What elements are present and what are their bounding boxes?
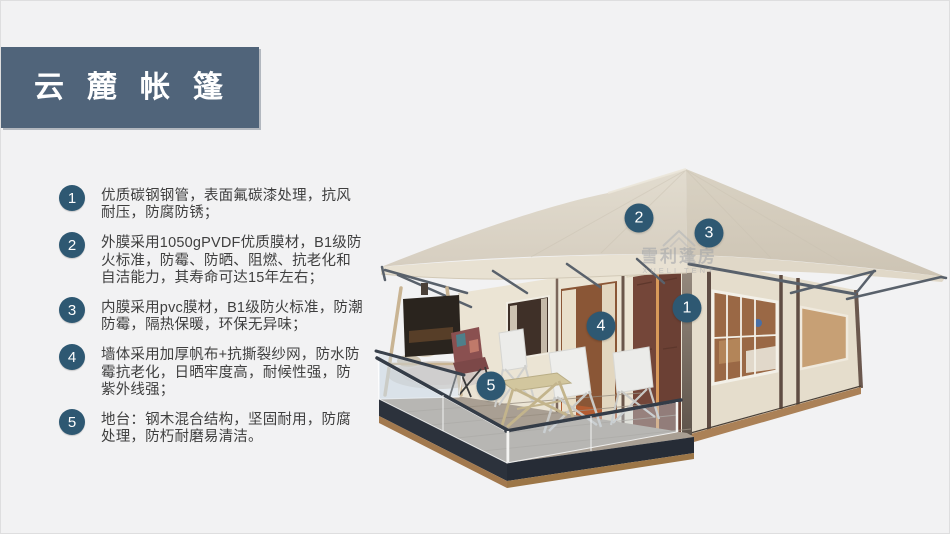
callout-5: 5 xyxy=(477,372,506,401)
callout-3: 3 xyxy=(695,219,724,248)
callout-2: 2 xyxy=(625,204,654,233)
callout-4: 4 xyxy=(587,312,616,341)
slide: 云麓帐篷 1 优质碳钢钢管，表面氟碳漆处理，抗风耐压，防腐防锈； 2 外膜采用1… xyxy=(0,0,950,534)
table-inside xyxy=(719,338,741,364)
easel-clamp xyxy=(421,283,428,295)
patch xyxy=(456,333,466,347)
curtain xyxy=(541,298,547,354)
easel-canvas xyxy=(403,295,461,357)
patch xyxy=(469,339,479,353)
white-chair xyxy=(613,347,653,393)
strut xyxy=(941,277,946,278)
tent-illustration xyxy=(1,1,950,534)
white-chair xyxy=(499,329,527,371)
roof xyxy=(381,169,946,282)
mesh-window xyxy=(801,307,847,369)
callout-1: 1 xyxy=(673,294,702,323)
corner-steel-post xyxy=(682,255,692,435)
